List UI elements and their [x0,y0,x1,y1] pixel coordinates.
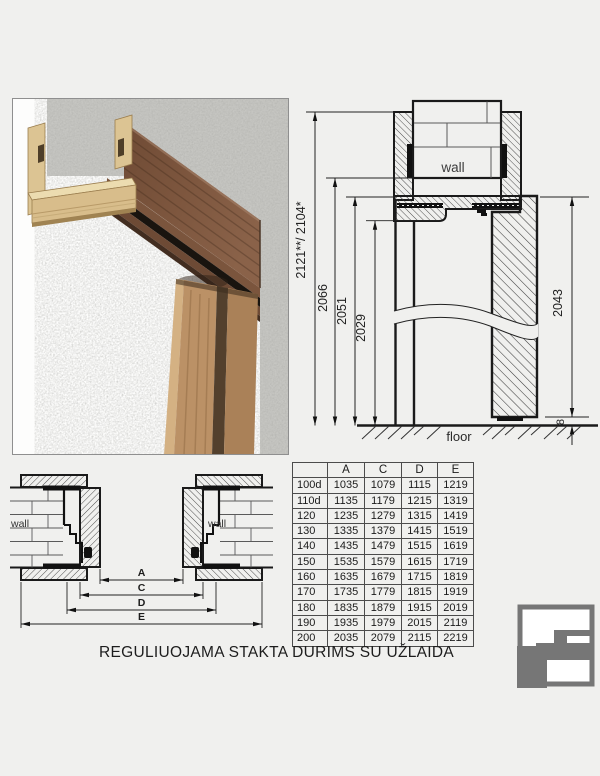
table-cell: 2119 [438,615,474,630]
table-cell: 1035 [328,478,365,493]
floor: floor [357,426,598,445]
table-cell: 1835 [328,600,365,615]
table-cell: 1635 [328,570,365,585]
table-header-cell: E [438,463,474,478]
table-cell: 2019 [438,600,474,615]
table-cell: 1915 [402,600,438,615]
spec-sheet-page: wall [0,0,600,776]
table-cell: 130 [293,524,328,539]
table-row: 1401435147915151619 [293,539,474,554]
table-cell: 1419 [438,508,474,523]
size-table-body: 100d1035107911151219110d1135117912151319… [293,478,474,646]
dim-total-label: 2121**/ 2104* [295,201,308,278]
dim-frame-label: 2051 [335,297,349,325]
table-header-cell: C [365,463,402,478]
table-cell: 1619 [438,539,474,554]
table-cell: 1615 [402,554,438,569]
wall-block: wall [413,101,501,178]
size-table: ACDE 100d1035107911151219110d11351179121… [292,462,474,647]
table-row: 100d1035107911151219 [293,478,474,493]
dim-a-label: A [138,567,146,579]
table-cell: 140 [293,539,328,554]
table-row: 1801835187919152019 [293,600,474,615]
door-leaf [492,196,537,421]
page-title: REGULIUOJAMA STAKTA DURIMS SU UŽLAIDA [0,644,553,662]
table-cell: 150 [293,554,328,569]
size-table-head: ACDE [293,463,474,478]
table-cell: 1115 [402,478,438,493]
table-cell: 1719 [438,554,474,569]
table-header-cell: A [328,463,365,478]
table-cell: 1735 [328,585,365,600]
table-cell: 1315 [402,508,438,523]
table-cell: 120 [293,508,328,523]
table-cell: 110d [293,493,328,508]
table-cell: 1815 [402,585,438,600]
vertical-section-drawing: wall [295,92,600,460]
table-header-cell: D [402,463,438,478]
wall-label-left: wall [10,518,29,530]
vertical-jamb [164,275,258,455]
table-row: 1501535157916151719 [293,554,474,569]
table-cell: 1715 [402,570,438,585]
table-cell: 1579 [365,554,402,569]
table-row: 1901935197920152119 [293,615,474,630]
floor-label: floor [446,429,472,444]
rebate-seal-step [481,213,487,216]
dimension-leaf: 2043 8 [540,197,589,445]
rebate-seal [477,209,486,213]
table-cell: 1819 [438,570,474,585]
table-header-cell [293,463,328,478]
table-cell: 1435 [328,539,365,554]
dim-leaf-label: 2043 [551,289,565,317]
dim-e-label: E [138,611,145,623]
table-row: 1201235127913151419 [293,508,474,523]
table-cell: 1935 [328,615,365,630]
table-cell: 160 [293,570,328,585]
table-cell: 1679 [365,570,402,585]
table-row: 1601635167917151819 [293,570,474,585]
right-jamb-assembly: wall [183,475,273,580]
dim-d-label: D [138,597,146,609]
wall-label: wall [440,160,464,175]
wall-label-right: wall [207,518,226,530]
table-cell: 190 [293,615,328,630]
door-bottom-seal [497,417,523,421]
table-cell: 1135 [328,493,365,508]
table-row: 110d1135117912151319 [293,493,474,508]
left-clamp-arm [407,144,412,178]
table-cell: 1515 [402,539,438,554]
horizontal-section-drawing: wall wall [2,462,294,644]
table-cell: 1519 [438,524,474,539]
table-cell: 1215 [402,493,438,508]
dim-gap-label: 8 [555,419,567,425]
table-cell: 1415 [402,524,438,539]
brand-logo [517,604,596,688]
table-cell: 1279 [365,508,402,523]
table-cell: 1079 [365,478,402,493]
table-cell: 1919 [438,585,474,600]
right-clamp-arm [502,144,507,178]
table-cell: 2015 [402,615,438,630]
table-cell: 1379 [365,524,402,539]
left-jamb-assembly: wall [10,475,100,580]
table-cell: 1219 [438,478,474,493]
table-cell: 1779 [365,585,402,600]
table-cell: 1879 [365,600,402,615]
table-cell: 100d [293,478,328,493]
dimension-arrows-left [313,112,377,426]
table-cell: 1235 [328,508,365,523]
table-cell: 1319 [438,493,474,508]
table-cell: 170 [293,585,328,600]
table-cell: 1335 [328,524,365,539]
table-header-row: ACDE [293,463,474,478]
dim-c-label: C [138,582,146,594]
table-cell: 1179 [365,493,402,508]
table-cell: 1979 [365,615,402,630]
dimension-labels-left: 2121**/ 2104* 2066 2051 2029 [295,201,368,342]
dim-opening-label: 2029 [354,314,368,342]
table-cell: 180 [293,600,328,615]
table-cell: 1535 [328,554,365,569]
product-photo [12,98,289,455]
dim-wall-label: 2066 [316,284,330,312]
table-cell: 1479 [365,539,402,554]
table-row: 1701735177918151919 [293,585,474,600]
table-row: 1301335137914151519 [293,524,474,539]
right-wall-bricks [220,488,273,568]
